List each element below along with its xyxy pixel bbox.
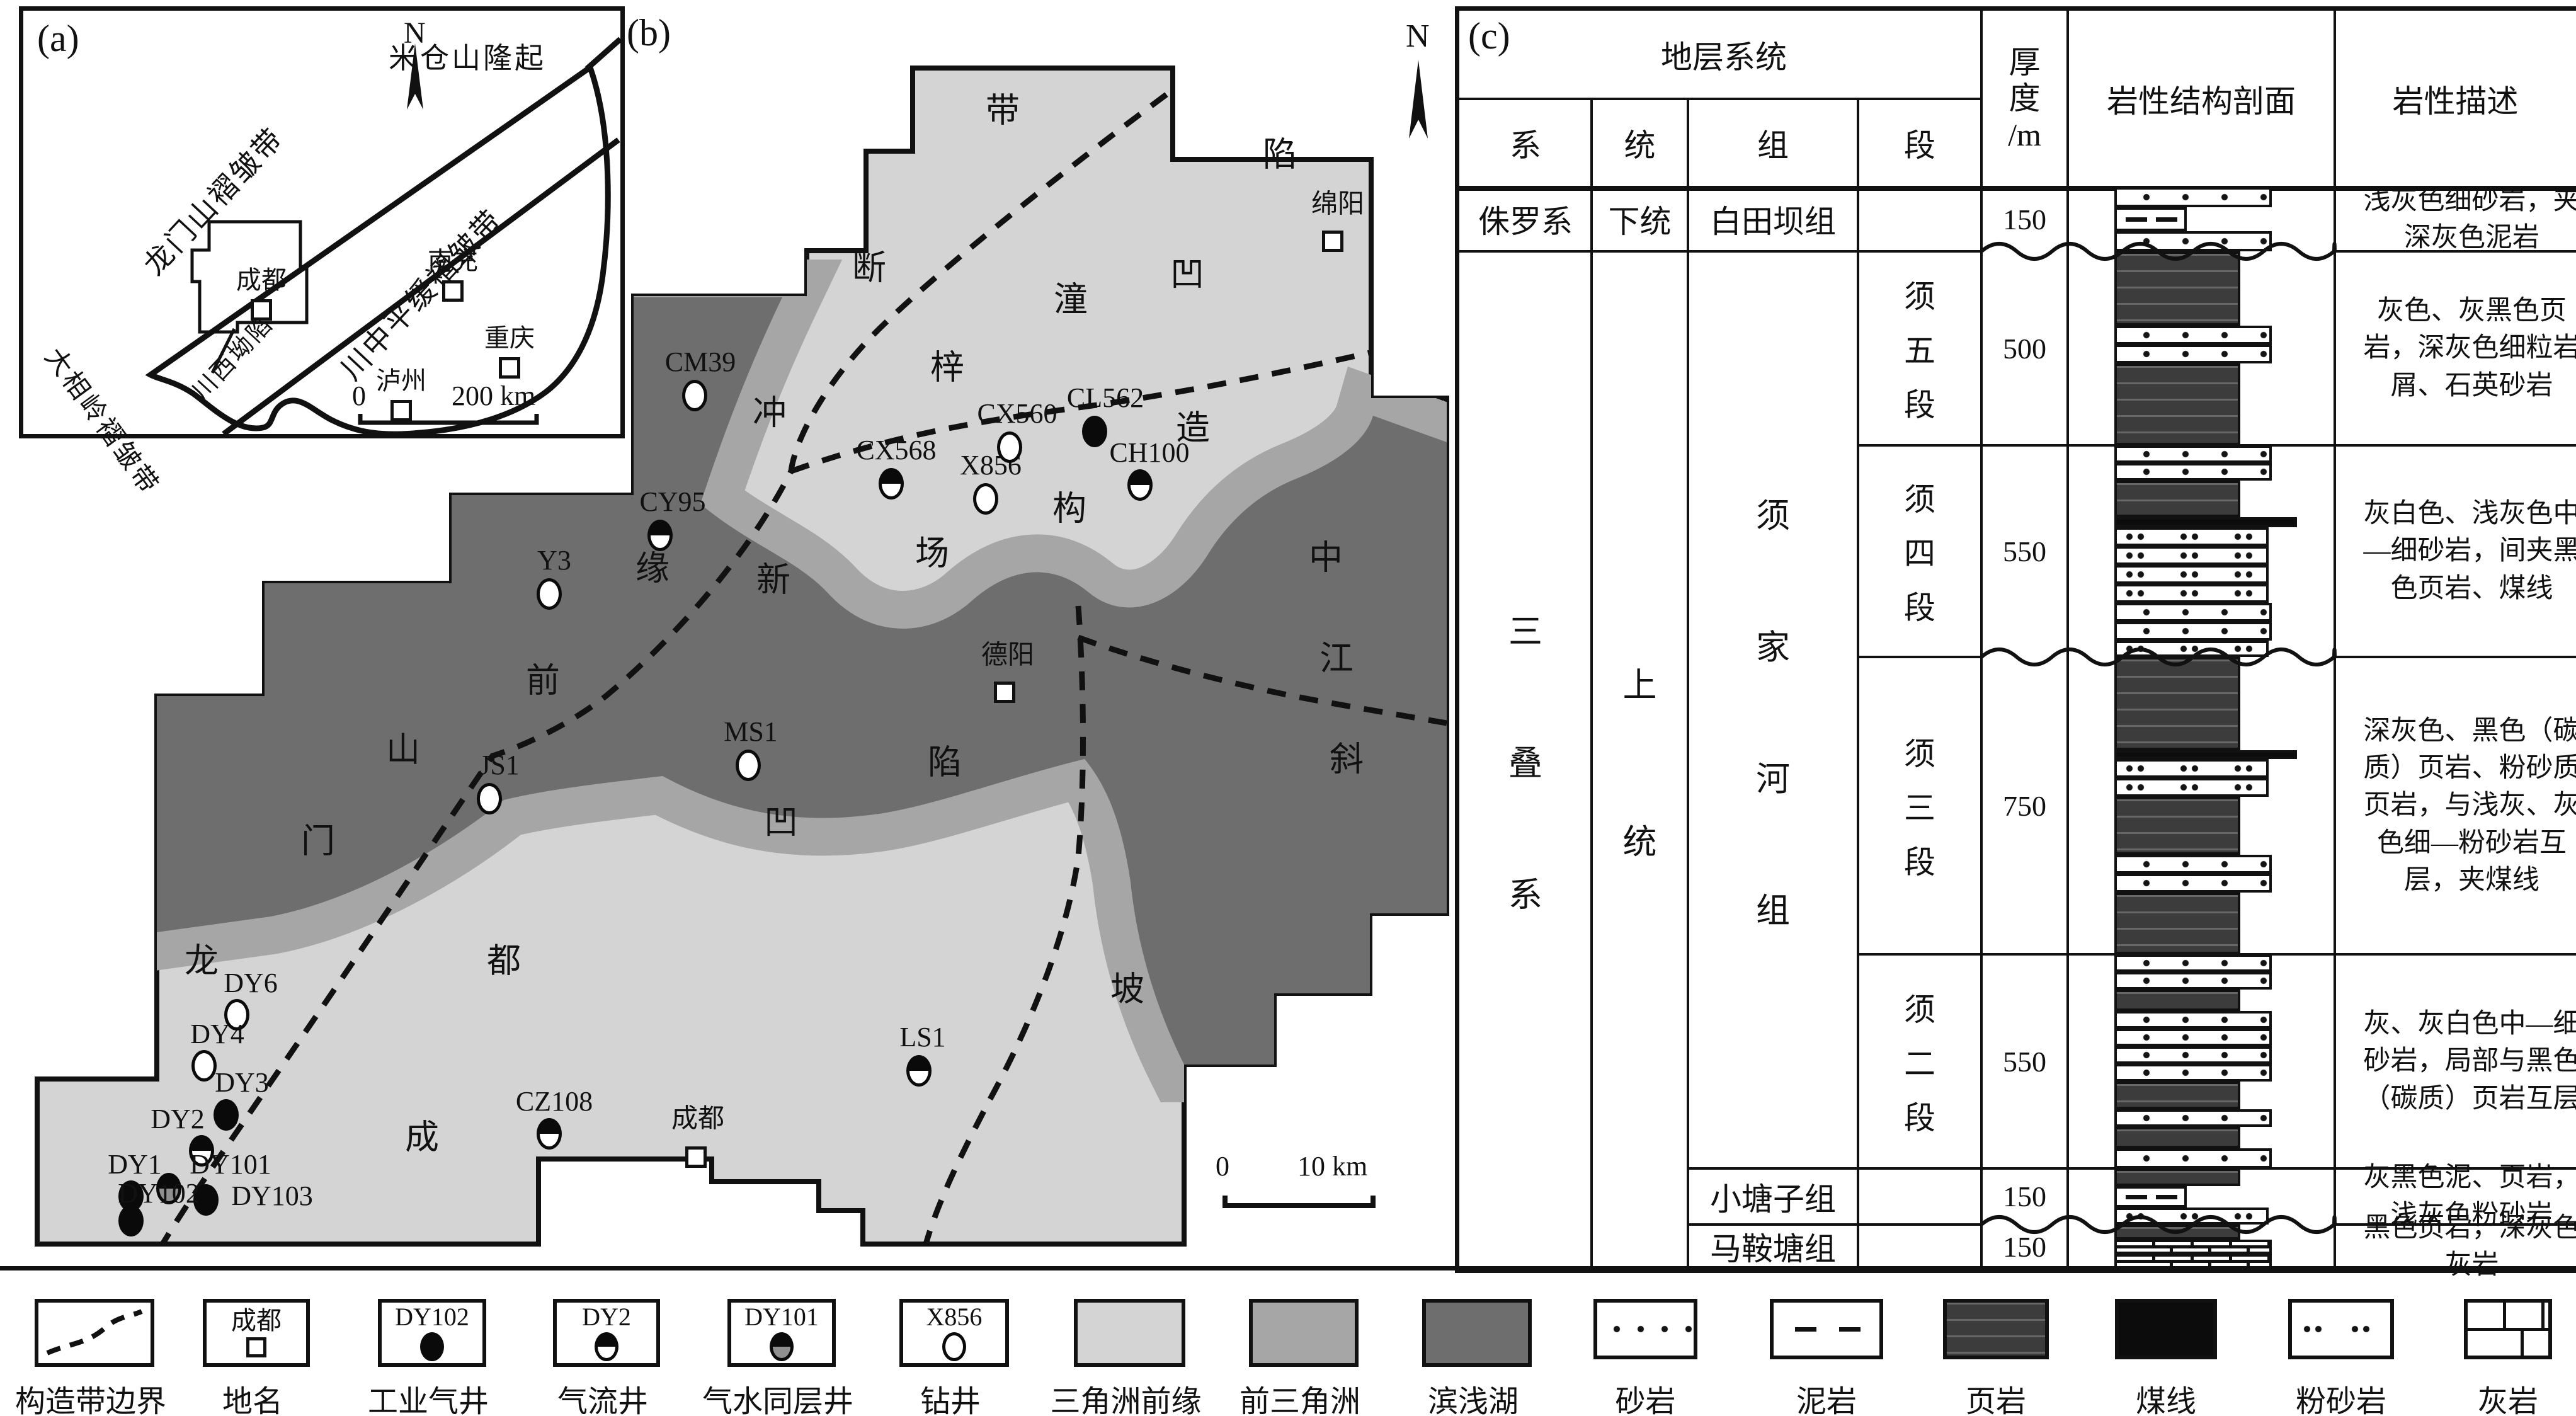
map-region-char: 前 [526,653,560,702]
wavy-unconformity [1981,649,2335,665]
dashed-line-icon [42,1306,147,1359]
uplift-line [587,39,620,69]
legend-box-swatch-mid [1249,1299,1359,1367]
scale-a-value: 200 km [452,380,535,412]
legend-label: 气水同层井 [702,1376,853,1416]
legend-box-pat-lime [2464,1299,2552,1359]
well-marker-DY4 [191,1050,217,1082]
well-label: CH100 [1109,437,1189,469]
map-region-char: 梓 [930,340,964,389]
figure-canvas: (b) 0 10 km N 冲断带梓潼凹陷新场构造缘前山门龙成都凹陷中江斜坡绵阳… [0,0,2576,1416]
well-label: CX560 [977,397,1057,430]
unconformity-waves [1459,11,2576,1269]
map-region-char: 成 [405,1109,439,1159]
city-name: 泸州 [376,367,426,395]
well-marker-Y3 [537,578,562,610]
legend-box-dashed [35,1299,154,1367]
legend-label: 地名 [222,1376,283,1416]
map-region-char: 潼 [1054,271,1088,321]
well-label: DY4 [190,1018,244,1050]
legend-divider [0,1266,2576,1270]
well-label: DY101 [190,1148,271,1180]
well-label: DY1 [108,1148,162,1180]
well-label: DY102 [118,1177,200,1209]
well-label: DY6 [224,967,278,999]
well-marker-CX560 [997,431,1022,463]
map-region-char: 新 [756,552,790,602]
well-label: DY103 [231,1180,313,1212]
legend-well-name: DY2 [582,1305,631,1330]
city-name-b: 成都 [671,1097,724,1136]
well-label: CL562 [1067,382,1144,414]
legend-label: 前三角洲 [1240,1376,1360,1416]
legend-label: 砂岩 [1615,1376,1675,1416]
city-marker-a: 南充 [428,249,478,302]
legend-box-well-filled: DY102 [378,1299,486,1367]
legend-box-swatch-light [1074,1299,1185,1367]
legend-box-swatch-dark [1422,1299,1532,1367]
legend-box-well-open: X856 [899,1299,1009,1367]
map-region-char: 构 [1052,481,1086,530]
well-label: CX568 [856,434,936,466]
well-marker-CM39 [682,380,707,411]
map-region-char: 江 [1319,631,1354,680]
map-region-char: 中 [1309,530,1343,580]
well-marker-CX568 [879,468,904,500]
legend-label: 页岩 [1966,1376,2026,1416]
map-region-char: 陷 [1263,127,1297,176]
legend-label: 工业气井 [368,1376,489,1416]
city-name-b: 绵阳 [1311,183,1364,221]
well-marker-CY95 [647,520,673,551]
city-name-b: 德阳 [981,634,1034,672]
well-marker-MS1 [736,750,761,781]
well-marker-X856 [973,483,998,515]
well-marker-CH100 [1127,469,1153,501]
map-region-char: 陷 [928,734,962,784]
well-label: LS1 [899,1021,945,1053]
well-marker-DY3 [214,1099,239,1131]
map-region-char: 带 [986,83,1020,132]
city-square-icon [499,357,520,379]
legend-box-pat-mud [1770,1299,1883,1359]
open-well-icon [942,1332,966,1361]
map-region-char: 山 [386,722,420,772]
well-marker-CL562 [1082,416,1107,447]
city-marker-a: 泸州 [376,368,426,421]
tectonic-unit-label: 米仓山隆起 [389,35,546,77]
map-region-char: 凹 [1170,246,1204,296]
well-marker-DY102 [118,1205,144,1236]
city-square-icon [685,1146,707,1168]
legend-label: 气流井 [557,1376,648,1416]
well-label: CY95 [639,486,705,518]
map-region-char: 场 [915,525,949,575]
map-region-char: 斜 [1330,731,1364,781]
city-square-icon [1322,231,1343,252]
map-region-char: 坡 [1110,961,1144,1011]
city-name: 重庆 [484,324,535,352]
city-name: 南充 [428,247,478,275]
well-label: Y3 [537,544,571,576]
legend-box-well-halfBW: DY2 [553,1299,660,1367]
legend-label: 滨浅湖 [1428,1376,1519,1416]
legend-label: 三角洲前缘 [1050,1376,1201,1416]
map-region-char: 龙 [185,933,219,983]
legend-box-pat-shale [1943,1299,2049,1359]
filled-well-icon [420,1332,444,1361]
well-label: MS1 [724,716,778,748]
city-square-icon [246,1337,266,1357]
well-marker-LS1 [906,1055,932,1087]
map-region-char: 门 [301,813,335,863]
legend-label: 泥岩 [1796,1376,1857,1416]
legend-well-name: X856 [926,1305,983,1330]
legend-box-pat-silt [2288,1299,2394,1359]
city-name: 成都 [236,266,287,294]
well-label: CM39 [665,346,736,378]
halfBW-well-icon [595,1332,618,1361]
city-marker-a: 成都 [236,268,287,321]
legend-place-name: 成都 [231,1308,282,1333]
panel-a-inset-map: (a) 0 200 km N 米仓山隆起龙门山褶皱带川西坳陷川中平缓褶皱带大相岭… [19,6,625,438]
wavy-unconformity [1981,244,2335,259]
well-marker-JS1 [477,783,502,814]
halfBG-well-icon [770,1332,794,1361]
well-label: CZ108 [516,1085,593,1117]
legend-well-name: DY102 [395,1305,469,1330]
city-square-icon [251,299,272,321]
legend-label: 钻井 [920,1376,981,1416]
city-square-icon [994,682,1015,703]
wavy-unconformity [1981,1217,2335,1232]
well-label: JS1 [479,749,520,781]
legend-box-pat-coal [2115,1299,2217,1359]
map-region-char: 冲 [753,385,787,435]
stratigraphic-column: (c) 地层系统 系 统 组 段 厚 度 /m 岩性结构剖面 岩性描述 侏罗系下… [1455,6,2576,1273]
legend-well-name: DY101 [744,1305,819,1330]
city-marker-a: 重庆 [484,326,535,379]
legend-box-pat-sand [1593,1299,1697,1359]
map-region-char: 凹 [764,794,798,844]
legend-label: 粉砂岩 [2296,1376,2386,1416]
city-square-icon [442,280,464,302]
well-marker-CZ108 [537,1118,562,1150]
city-square-icon [390,400,412,421]
legend-box-place: 成都 [203,1299,310,1367]
map-region-char: 都 [487,933,521,983]
well-label: DY3 [215,1066,269,1099]
legend-label: 灰岩 [2478,1376,2538,1416]
legend-label: 构造带边界 [15,1376,166,1416]
legend-box-well-halfBG: DY101 [727,1299,836,1367]
legend-label: 煤线 [2136,1376,2196,1416]
well-label: DY2 [151,1103,205,1135]
map-region-char: 断 [852,240,886,290]
